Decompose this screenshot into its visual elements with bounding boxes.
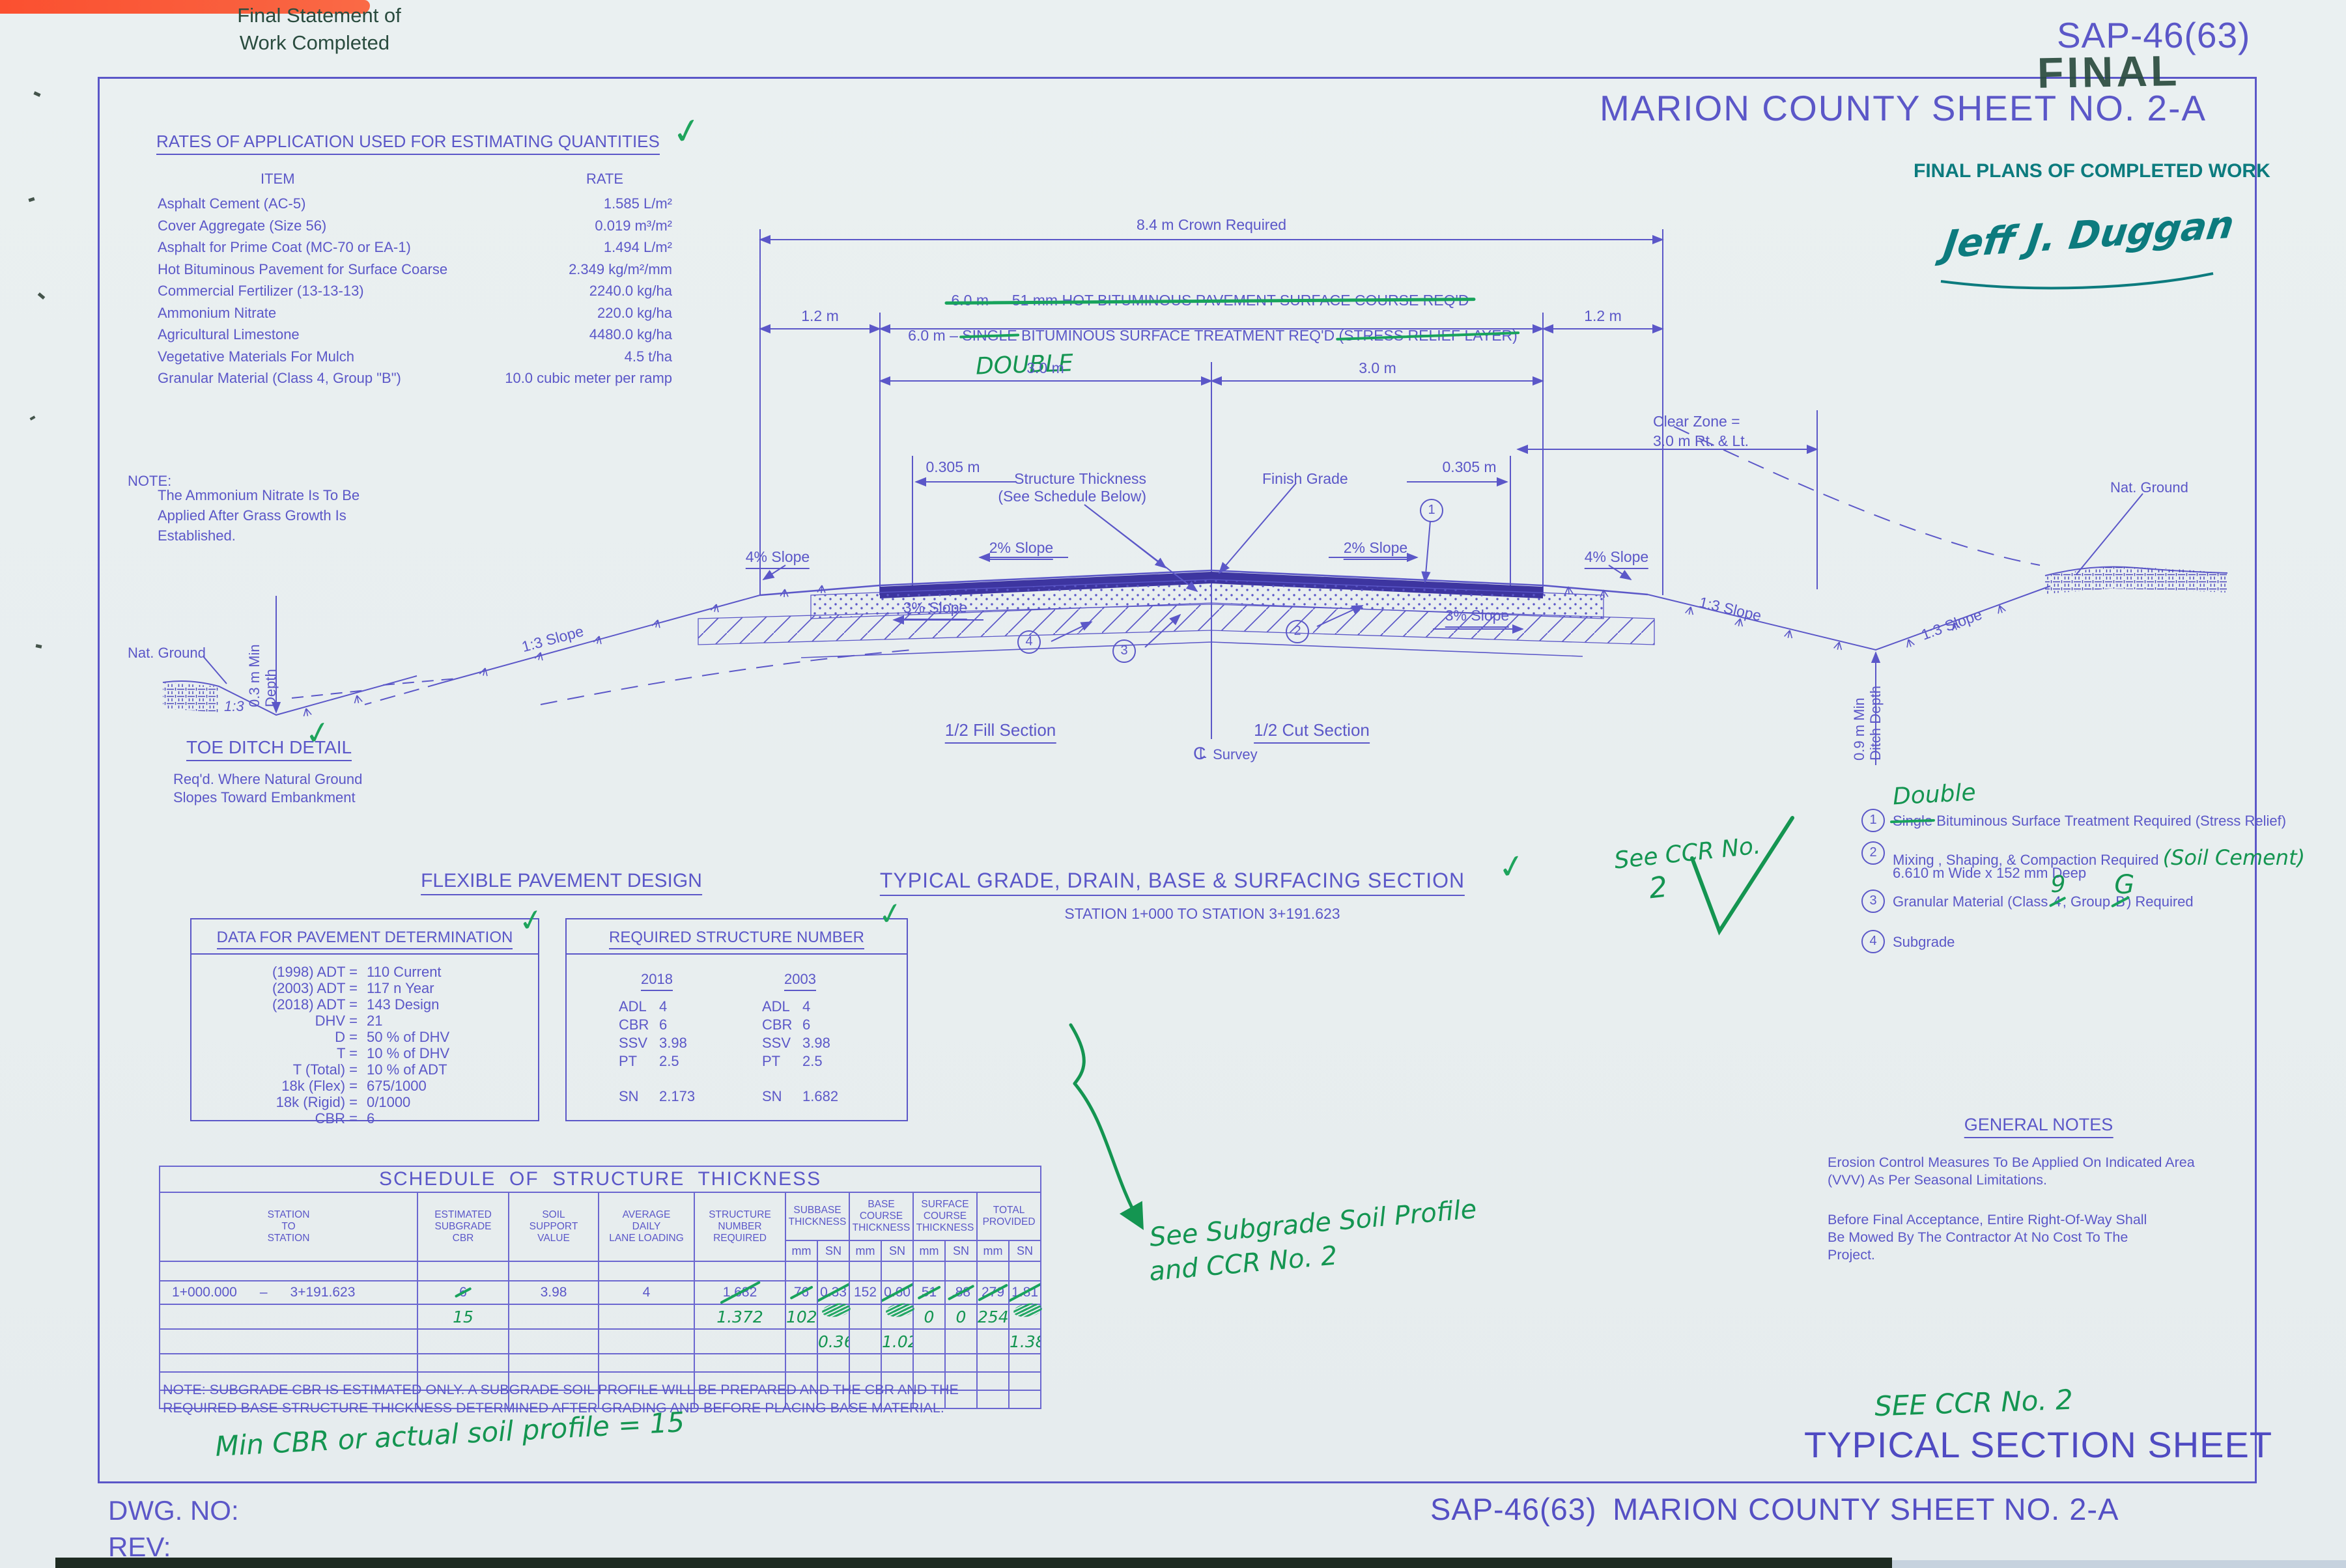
data-row: D =50 % of DHV	[218, 1029, 538, 1045]
data-value: 50 % of DHV	[367, 1029, 538, 1045]
rate-value: 10.0 cubic meter per ramp	[505, 367, 672, 389]
dwg-no-label: DWG. NO:	[108, 1495, 239, 1526]
data-label: (2018) ADT =	[218, 996, 358, 1013]
hand-surf-mm: 0	[913, 1304, 945, 1329]
data-row: CBR =6	[218, 1110, 538, 1127]
slope-2pct-right: 2% Slope	[1344, 539, 1407, 557]
rates-row: Cover Aggregate (Size 56)0.019 m³/m²	[158, 215, 672, 237]
rate-value: 2240.0 kg/ha	[589, 280, 672, 302]
sub-mm: mm	[977, 1240, 1009, 1261]
structure-thickness-line1: Structure Thickness	[938, 470, 1146, 488]
toe-depth-line2: Depth	[262, 644, 279, 707]
rsn-value: 1.682	[802, 1088, 838, 1104]
slope-4pct-left: 4% Slope	[746, 548, 810, 566]
rsn-row: SSV3.98	[619, 1034, 695, 1052]
slope-2pct-left: 2% Slope	[989, 539, 1053, 557]
dim-1-2m-left: 1.2 m	[801, 307, 839, 325]
dim-1-2m-right: 1.2 m	[1584, 307, 1622, 325]
rsn-row: SSV3.98	[762, 1034, 838, 1052]
hand-sub-mm: 102	[785, 1304, 817, 1329]
schedule-note-line1: NOTE: SUBGRADE CBR IS ESTIMATED ONLY. A …	[163, 1382, 959, 1398]
legend-item-3-post: ) Required	[2127, 893, 2194, 910]
rates-row: Granular Material (Class 4, Group "B")10…	[158, 367, 672, 389]
centerline-survey: CL Survey	[1193, 744, 1258, 764]
data-label: CBR =	[218, 1110, 358, 1127]
plan-sheet: Final Statement of Work Completed SAP-46…	[0, 0, 2346, 1568]
rsn-key: SSV	[762, 1034, 802, 1052]
scan-speck	[28, 197, 35, 203]
data-pavement-title-text: DATA FOR PAVEMENT DETERMINATION	[217, 929, 513, 949]
structure-thickness-line2: (See Schedule Below)	[938, 488, 1146, 505]
data-row: T (Total) =10 % of ADT	[218, 1061, 538, 1078]
dim-3m-left: 3.0 m	[1026, 359, 1064, 377]
data-label: (2003) ADT =	[218, 980, 358, 996]
rsn-key: CBR	[619, 1016, 659, 1034]
row-surf-mm: 51	[913, 1281, 945, 1304]
clear-zone-line1: Clear Zone =	[1653, 413, 1740, 430]
rsn-row: PT2.5	[762, 1052, 838, 1071]
data-value: 21	[367, 1013, 538, 1029]
toe-depth-label: 0.3 m Min Depth	[246, 644, 279, 707]
rates-row: Agricultural Limestone4480.0 kg/ha	[158, 324, 672, 346]
ditch-depth-label: 0.9 m Min Ditch Depth	[1851, 686, 1884, 761]
footer-project-no: SAP-46(63)	[1430, 1492, 1597, 1526]
treatment-single-struck: SINGLE	[962, 327, 1017, 344]
slope-2pct-left-text: 2% Slope	[989, 539, 1053, 560]
data-value: 110 Current	[367, 964, 538, 980]
rates-heading: RATES OF APPLICATION USED FOR ESTIMATING…	[156, 132, 660, 152]
row-base-mm: 152	[849, 1281, 881, 1304]
general-note-2-line3: Project.	[1828, 1246, 1875, 1264]
data-row: T =10 % of DHV	[218, 1045, 538, 1061]
legend-item-3: Granular Material (Class 49, Group BG) R…	[1893, 893, 2194, 910]
data-row: 18k (Flex) =675/1000	[218, 1078, 538, 1094]
rsn-row: CBR6	[619, 1016, 695, 1034]
dim-crown: 8.4 m Crown Required	[1137, 216, 1286, 234]
section-title-text: TYPICAL GRADE, DRAIN, BASE & SURFACING S…	[880, 869, 1465, 896]
schedule-table: SCHEDULE OF STRUCTURE THICKNESS STATION …	[159, 1166, 1041, 1409]
rate-item: Cover Aggregate (Size 56)	[158, 215, 326, 237]
legend-item-1: Single Bituminous Surface Treatment Requ…	[1893, 813, 2286, 830]
col-station: STATION TO STATION	[160, 1192, 417, 1261]
scan-speck	[30, 415, 36, 420]
sub-mm: mm	[785, 1240, 817, 1261]
callout-1: 1	[1420, 499, 1443, 522]
centerline-symbol: CL	[1193, 744, 1209, 764]
row-snr: 1.682	[694, 1281, 785, 1304]
rsn-value: 6	[659, 1016, 667, 1033]
rsn-sn-row: SN1.682	[762, 1087, 838, 1106]
col-total: TOTAL PROVIDED	[977, 1192, 1041, 1240]
hand-double-legend: Double	[1892, 779, 1977, 811]
legend-callout-1: 1	[1861, 809, 1885, 832]
stamp-final-statement-line1: Final Statement of	[237, 4, 401, 27]
rate-value: 4.5 t/ha	[625, 346, 672, 368]
scan-bottom-strip-dark	[55, 1558, 1892, 1568]
scan-speck	[33, 91, 40, 97]
rate-value: 1.585 L/m²	[604, 193, 672, 215]
tot-mm-struck: 279	[980, 1285, 1006, 1300]
finish-grade-label: Finish Grade	[1262, 470, 1348, 488]
half-fill-text: 1/2 Fill Section	[945, 720, 1056, 744]
half-cut-section: 1/2 Cut Section	[1254, 720, 1370, 740]
rsn-year-1: 2018	[619, 970, 695, 988]
rate-item: Commercial Fertilizer (13-13-13)	[158, 280, 364, 302]
schedule-title: SCHEDULE OF STRUCTURE THICKNESS	[160, 1166, 1041, 1192]
label-hot-bituminous-struck: 6.0 m — 51 mm HOT BITUMINOUS PAVEMENT SU…	[951, 292, 1469, 309]
slope-3pct-left-text: 3% Slope	[903, 599, 967, 620]
stamp-final-statement-line2: Work Completed	[240, 31, 389, 55]
data-label: D =	[218, 1029, 358, 1045]
label-surface-treatment: 6.0 m – SINGLE BITUMINOUS SURFACE TREATM…	[908, 327, 1518, 344]
rates-col-item: ITEM	[261, 171, 295, 188]
rate-item: Hot Bituminous Pavement for Surface Coar…	[158, 259, 447, 281]
footer-title: SAP-46(63) MARION COUNTY SHEET NO. 2-A	[1430, 1491, 2119, 1527]
rsn-key: PT	[762, 1052, 802, 1071]
general-notes-heading-text: GENERAL NOTES	[1964, 1115, 2113, 1138]
data-row: (2018) ADT =143 Design	[218, 996, 538, 1013]
slope-3pct-right-text: 3% Slope	[1445, 607, 1509, 628]
col-base: BASE COURSE THICKNESS	[849, 1192, 913, 1240]
rsn-sn-row: SN2.173	[619, 1087, 695, 1106]
row-sub-sn: 0.33	[817, 1281, 849, 1304]
legend-single-struck: Single	[1893, 813, 1932, 830]
general-note-2-line2: Be Mowed By The Contractor At No Cost To…	[1828, 1229, 2128, 1246]
rate-value: 220.0 kg/ha	[597, 302, 672, 324]
slope-3pct-left: 3% Slope	[903, 599, 967, 617]
rates-row: Hot Bituminous Pavement for Surface Coar…	[158, 259, 672, 281]
legend-item-4: Subgrade	[1893, 934, 1955, 951]
data-row: (1998) ADT =110 Current	[218, 964, 538, 980]
rate-value: 2.349 kg/m²/mm	[569, 259, 672, 281]
structure-thickness-label: Structure Thickness (See Schedule Below)	[938, 470, 1146, 505]
note-line3: Established.	[158, 527, 236, 544]
fpd-heading: FLEXIBLE PAVEMENT DESIGN	[421, 870, 702, 892]
slope-3pct-right: 3% Slope	[1445, 607, 1509, 624]
general-note-1-line1: Erosion Control Measures To Be Applied O…	[1828, 1154, 2195, 1171]
rsn-value: 2.5	[802, 1053, 823, 1069]
section-subtitle: STATION 1+000 TO STATION 3+191.623	[1064, 905, 1340, 923]
data-value: 675/1000	[367, 1078, 538, 1094]
rsn-value: 2.173	[659, 1088, 695, 1104]
dim-3m-right: 3.0 m	[1359, 359, 1396, 377]
legend-item-3-mid: , Group	[2063, 893, 2114, 910]
data-label: T (Total) =	[218, 1061, 358, 1078]
sub-mm-struck: 76	[793, 1285, 810, 1300]
legend-item-1-text: Bituminous Surface Treatment Required (S…	[1936, 813, 2286, 829]
rsn-key: SN	[762, 1087, 802, 1106]
survey-text: Survey	[1213, 746, 1257, 763]
stamp-final-plans: FINAL PLANS OF COMPLETED WORK	[1914, 160, 2270, 182]
treatment-prefix: 6.0 m –	[908, 327, 958, 344]
rate-item: Asphalt Cement (AC-5)	[158, 193, 305, 215]
nat-ground-right-label: Nat. Ground	[2110, 479, 2188, 496]
rate-item: Ammonium Nitrate	[158, 302, 276, 324]
rsn-key: ADL	[762, 998, 802, 1016]
rsn-key: SSV	[619, 1034, 659, 1052]
rsn-row: PT2.5	[619, 1052, 695, 1071]
hand-soil-cement: (Soil Cement)	[2163, 845, 2306, 870]
col-snr: STRUCTURE NUMBER REQUIRED	[694, 1192, 785, 1261]
toe-ratio: 1:3	[224, 698, 244, 715]
hand-base-sn2: 1.02	[881, 1329, 913, 1354]
structure-number-box: REQUIRED STRUCTURE NUMBER 2018 ADL4 CBR6…	[565, 918, 908, 1121]
data-row: DHV =21	[218, 1013, 538, 1029]
surf-mm-struck: 51	[920, 1285, 938, 1300]
col-adl: AVERAGE DAILY LANE LOADING	[599, 1192, 694, 1261]
slope-2pct-right-text: 2% Slope	[1344, 539, 1407, 560]
rsn-value: 3.98	[659, 1035, 687, 1051]
hot-bituminous-text: 6.0 m — 51 mm HOT BITUMINOUS PAVEMENT SU…	[951, 292, 1469, 309]
data-value: 143 Design	[367, 996, 538, 1013]
data-row: 18k (Rigid) =0/1000	[218, 1094, 538, 1110]
rsn-row: ADL4	[762, 998, 838, 1016]
rate-value: 0.019 m³/m²	[595, 215, 672, 237]
sub-sn-struck: 0.33	[819, 1285, 848, 1300]
hand-group-g: G	[2114, 870, 2134, 900]
sub-mm: mm	[913, 1240, 945, 1261]
legend-callout-2: 2	[1861, 841, 1885, 865]
rates-row: Asphalt for Prime Coat (MC-70 or EA-1)1.…	[158, 236, 672, 259]
sub-sn: SN	[817, 1240, 849, 1261]
rates-row: Vegetative Materials For Mulch4.5 t/ha	[158, 346, 672, 368]
rates-heading-text: RATES OF APPLICATION USED FOR ESTIMATING…	[156, 132, 660, 155]
rate-value: 4480.0 kg/ha	[589, 324, 672, 346]
hand-snr: 1.372	[694, 1304, 785, 1329]
treatment-stress-struck: (STRESS RELIEF LAYER)	[1338, 327, 1517, 344]
hand-tot-mm: 254	[977, 1304, 1009, 1329]
data-row: (2003) ADT =117 n Year	[218, 980, 538, 996]
row-cbr: 6	[417, 1281, 509, 1304]
row-base-sn: 0.60	[881, 1281, 913, 1304]
sub-sn: SN	[945, 1240, 977, 1261]
toe-caption-line1: Req'd. Where Natural Ground	[173, 771, 362, 788]
legend-callout-4: 4	[1861, 930, 1885, 953]
rsn-row: CBR6	[762, 1016, 838, 1034]
sheet-type-title: TYPICAL SECTION SHEET	[1804, 1423, 2272, 1466]
ditch-depth-line1: 0.9 m Min	[1851, 686, 1867, 761]
rsn-year-2: 2003	[762, 970, 838, 988]
rate-item: Asphalt for Prime Coat (MC-70 or EA-1)	[158, 236, 411, 259]
scan-bottom-strip-blue	[1892, 1560, 2346, 1568]
general-note-1-line2: (VVV) As Per Seasonal Limitations.	[1828, 1171, 2047, 1189]
rate-item: Agricultural Limestone	[158, 324, 300, 346]
sub-sn: SN	[1009, 1240, 1041, 1261]
rsn-value: 4	[659, 998, 667, 1015]
cl-l: L	[1199, 746, 1207, 762]
structure-number-title-text: REQUIRED STRUCTURE NUMBER	[609, 929, 864, 949]
rsn-col-2003: 2003 ADL4 CBR6 SSV3.98 PT2.5 SN1.682	[762, 970, 838, 1106]
rates-table: Asphalt Cement (AC-5)1.585 L/m² Cover Ag…	[158, 193, 672, 389]
sub-mm: mm	[849, 1240, 881, 1261]
rsn-value: 3.98	[802, 1035, 830, 1051]
legend-item-3-pre: Granular Material (Class	[1893, 893, 2052, 910]
tot-sn-struck: 1.81	[1010, 1285, 1039, 1300]
rate-item: Vegetative Materials For Mulch	[158, 346, 354, 368]
slope-4pct-right-text: 4% Slope	[1585, 548, 1648, 569]
rsn-value: 6	[802, 1016, 810, 1033]
row-ssv: 3.98	[509, 1281, 599, 1304]
rsn-row: ADL4	[619, 998, 695, 1016]
hand-surf-sn: 0	[945, 1304, 977, 1329]
rates-row: Commercial Fertilizer (13-13-13)2240.0 k…	[158, 280, 672, 302]
rsn-year-1-text: 2018	[641, 971, 673, 991]
hand-sub-sn2: 0.36	[817, 1329, 849, 1354]
hand-tot-sn2: 1.38	[1009, 1329, 1041, 1354]
fpd-heading-text: FLEXIBLE PAVEMENT DESIGN	[421, 870, 702, 895]
data-label: (1998) ADT =	[218, 964, 358, 980]
slope-4pct-right: 4% Slope	[1585, 548, 1648, 566]
callout-2: 2	[1286, 620, 1309, 643]
structure-number-box-title: REQUIRED STRUCTURE NUMBER	[567, 919, 907, 955]
toe-caption-line2: Slopes Toward Embankment	[173, 789, 356, 806]
rev-label: REV:	[108, 1532, 171, 1563]
rsn-value: 2.5	[659, 1053, 679, 1069]
hand-class-9: 9	[2051, 871, 2066, 898]
treatment-mid: BITUMINOUS SURFACE TREATMENT REQ'D	[1021, 327, 1335, 344]
data-pavement-box: DATA FOR PAVEMENT DETERMINATION (1998) A…	[190, 918, 539, 1121]
col-surface: SURFACE COURSE THICKNESS	[913, 1192, 977, 1240]
toe-nat-ground: Nat. Ground	[128, 645, 206, 662]
rsn-col-2018: 2018 ADL4 CBR6 SSV3.98 PT2.5 SN2.173	[619, 970, 695, 1106]
scan-speck	[38, 292, 46, 300]
note-line1: The Ammonium Nitrate Is To Be	[158, 487, 360, 504]
rates-row: Ammonium Nitrate220.0 kg/ha	[158, 302, 672, 324]
section-title: TYPICAL GRADE, DRAIN, BASE & SURFACING S…	[880, 869, 1465, 893]
data-label: 18k (Flex) =	[218, 1078, 358, 1094]
data-value: 117 n Year	[367, 980, 538, 996]
col-subbase: SUBBASE THICKNESS	[785, 1192, 849, 1240]
rsn-year-2-text: 2003	[784, 971, 816, 991]
general-notes-heading: GENERAL NOTES	[1964, 1115, 2113, 1135]
sub-sn: SN	[881, 1240, 913, 1261]
row-station: 1+000.000 – 3+191.623	[160, 1281, 417, 1304]
data-pavement-rows: (1998) ADT =110 Current (2003) ADT =117 …	[191, 955, 538, 1127]
data-label: 18k (Rigid) =	[218, 1094, 358, 1110]
row-surf-sn: .88	[945, 1281, 977, 1304]
data-value: 10 % of DHV	[367, 1045, 538, 1061]
half-cut-text: 1/2 Cut Section	[1254, 720, 1370, 744]
col-cbr: ESTIMATED SUBGRADE CBR	[417, 1192, 509, 1261]
rate-value: 1.494 L/m²	[604, 236, 672, 259]
col-ssv: SOIL SUPPORT VALUE	[509, 1192, 599, 1261]
rates-col-rate: RATE	[586, 171, 623, 188]
half-fill-section: 1/2 Fill Section	[945, 720, 1056, 740]
hand-cbr: 15	[417, 1304, 509, 1329]
rsn-key: CBR	[762, 1016, 802, 1034]
sheet-title: MARION COUNTY SHEET NO. 2-A	[1600, 87, 2207, 129]
ditch-depth-line2: Ditch Depth	[1867, 686, 1884, 761]
dim-0305-right: 0.305 m	[1442, 458, 1496, 476]
rsn-key: PT	[619, 1052, 659, 1071]
callout-4: 4	[1017, 630, 1041, 654]
clear-zone-line2: 3.0 m Rt. & Lt.	[1653, 432, 1749, 450]
data-pavement-box-title: DATA FOR PAVEMENT DETERMINATION	[191, 919, 538, 955]
footer-county: MARION COUNTY SHEET NO. 2-A	[1613, 1492, 2119, 1526]
row-tot-sn: 1.81	[1009, 1281, 1041, 1304]
rates-row: Asphalt Cement (AC-5)1.585 L/m²	[158, 193, 672, 215]
cbr-struck: 6	[458, 1285, 468, 1300]
toe-depth-line1: 0.3 m Min	[246, 644, 262, 707]
row-tot-mm: 279	[977, 1281, 1009, 1304]
slope-4pct-left-text: 4% Slope	[746, 548, 810, 569]
row-adl: 4	[599, 1281, 694, 1304]
snr-struck: 1.682	[722, 1285, 759, 1300]
data-value: 10 % of ADT	[367, 1061, 538, 1078]
base-sn-struck: 0.60	[883, 1285, 912, 1300]
callout-3: 3	[1112, 639, 1136, 663]
legend-callout-3: 3	[1861, 889, 1885, 913]
general-note-2-line1: Before Final Acceptance, Entire Right-Of…	[1828, 1211, 2147, 1229]
data-label: DHV =	[218, 1013, 358, 1029]
scan-speck	[36, 644, 42, 649]
rsn-key: SN	[619, 1087, 659, 1106]
data-label: T =	[218, 1045, 358, 1061]
data-value: 6	[367, 1110, 538, 1127]
rsn-value: 4	[802, 998, 810, 1015]
row-sub-mm: 76	[785, 1281, 817, 1304]
rate-item: Granular Material (Class 4, Group "B")	[158, 367, 401, 389]
note-line2: Applied After Grass Growth Is	[158, 507, 346, 524]
surf-sn-struck: .88	[950, 1285, 972, 1300]
hand-see-ccr-side-line2: 2	[1647, 871, 1669, 906]
rsn-key: ADL	[619, 998, 659, 1016]
data-value: 0/1000	[367, 1094, 538, 1110]
